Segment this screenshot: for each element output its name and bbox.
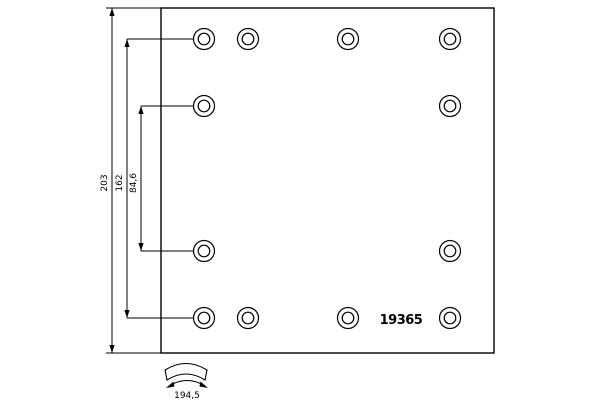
arrowhead-up [109,8,114,16]
arrowhead-down [138,243,143,251]
arc-width-arrow-curve [169,381,205,387]
arrowhead-up [138,106,143,114]
lining-plate-outline [161,8,494,353]
arrowhead-up [124,39,129,47]
dimension-label-rivet-span-inner: 84,6 [129,173,139,193]
lining-curvature-symbol: 194,5 [165,364,208,400]
brake-lining-technical-drawing: 203 162 84,6 19365 [0,0,600,400]
part-number: 19365 [380,313,423,328]
arrowhead-down [109,345,114,353]
drawing-svg: 203 162 84,6 19365 [0,0,600,400]
dimension-overall-height: 203 [100,8,115,353]
arrowhead-down [124,310,129,318]
dimension-label-rivet-span-outer: 162 [115,174,125,191]
dimension-label-arc-width: 194,5 [174,391,200,400]
curved-section-band [165,364,207,381]
arrowhead-right [200,382,209,389]
dimension-label-overall-height: 203 [100,174,110,191]
arrowhead-left [166,382,175,389]
